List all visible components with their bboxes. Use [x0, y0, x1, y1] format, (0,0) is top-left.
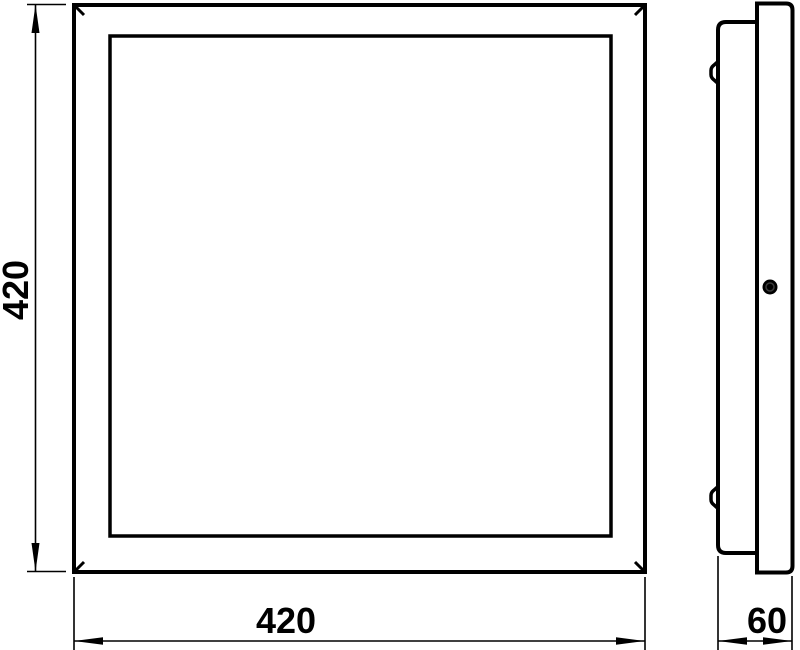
arrowhead-right — [616, 637, 645, 645]
technical-drawing: 420 420 60 — [0, 0, 800, 650]
side-view — [711, 4, 793, 573]
technical-drawing-page: 420 420 60 — [0, 0, 800, 650]
arrowhead-down — [32, 543, 40, 572]
screw-head-dot — [763, 280, 778, 295]
front-view-outer-frame — [74, 5, 645, 572]
side-view-body — [718, 22, 757, 553]
height-dimension-label: 420 — [0, 260, 36, 320]
front-view — [74, 5, 645, 572]
height-dimension: 420 — [0, 5, 66, 572]
arrowhead-up — [32, 5, 40, 34]
arrowhead-left — [74, 637, 103, 645]
depth-dimension-label: 60 — [747, 600, 787, 641]
arrowhead-left — [718, 637, 747, 645]
width-dimension: 420 — [74, 577, 645, 650]
width-dimension-label: 420 — [256, 600, 316, 641]
